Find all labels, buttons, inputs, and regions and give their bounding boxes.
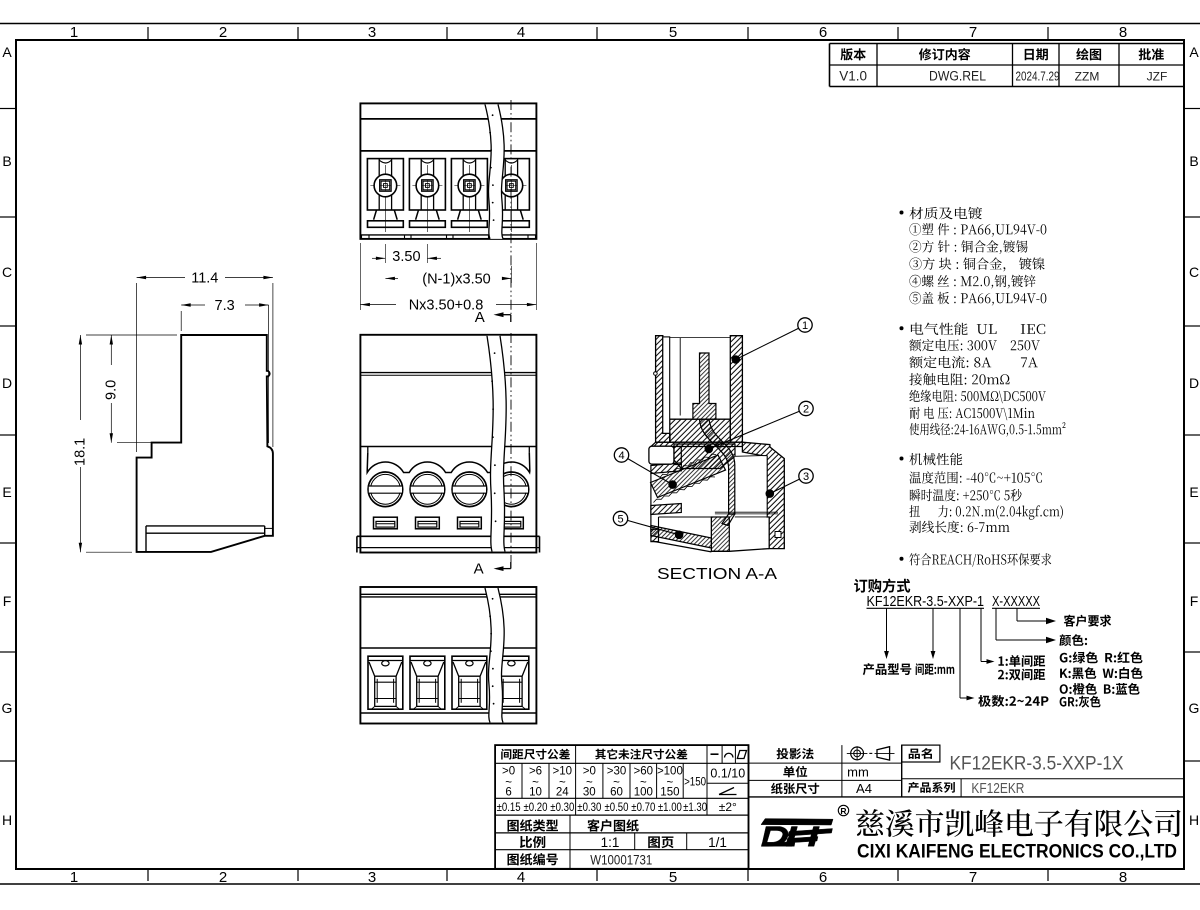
svg-text:1: 1 (802, 320, 808, 332)
svg-text:7: 7 (969, 24, 977, 41)
svg-text:W10001731: W10001731 (590, 851, 652, 867)
svg-text:3.50: 3.50 (392, 249, 420, 265)
svg-text:1: 1 (70, 24, 78, 41)
svg-text:D: D (1189, 375, 1199, 391)
svg-text:±0.70: ±0.70 (631, 802, 655, 814)
svg-text:KF12EKR-3.5-XXP-1: KF12EKR-3.5-XXP-1 (867, 594, 985, 610)
svg-text:5: 5 (669, 869, 677, 886)
svg-text:B: B (1189, 153, 1198, 169)
svg-text:B: B (2, 153, 11, 169)
svg-text:H: H (1189, 812, 1199, 828)
svg-text:E: E (2, 484, 11, 500)
svg-text:C: C (2, 264, 12, 280)
svg-text:4: 4 (517, 24, 525, 41)
svg-text:1: 1 (70, 869, 78, 886)
svg-text:H: H (2, 812, 12, 828)
svg-text:2: 2 (219, 869, 227, 886)
svg-text:±1.00: ±1.00 (658, 802, 682, 814)
svg-text:A: A (475, 309, 485, 326)
svg-text:V1.0: V1.0 (839, 69, 867, 84)
svg-text:G: G (2, 700, 13, 716)
svg-text:100: 100 (634, 787, 653, 799)
svg-text:F: F (3, 593, 12, 609)
svg-text:A: A (2, 44, 12, 60)
svg-text:>100: >100 (657, 766, 683, 778)
svg-text:8: 8 (1119, 24, 1127, 41)
svg-text:Nx3.50+0.8: Nx3.50+0.8 (409, 297, 484, 313)
svg-text:6: 6 (819, 869, 827, 886)
svg-text:±2°: ±2° (719, 800, 737, 814)
svg-text:KF12EKR: KF12EKR (971, 780, 1024, 797)
svg-text:0.1/10: 0.1/10 (710, 767, 745, 781)
svg-text:A: A (1189, 44, 1199, 60)
svg-text:7: 7 (969, 869, 977, 886)
svg-text:±0.20: ±0.20 (524, 802, 548, 814)
svg-text:5: 5 (617, 513, 623, 525)
svg-text:>150: >150 (684, 775, 706, 789)
svg-text:C: C (1189, 264, 1199, 280)
svg-text:11.4: 11.4 (191, 270, 218, 286)
svg-text:F: F (1190, 593, 1199, 609)
svg-text:4: 4 (618, 450, 624, 462)
svg-text:mm: mm (847, 764, 869, 779)
svg-text:A4: A4 (856, 781, 872, 796)
svg-text:KF12EKR-3.5-XXP-1X: KF12EKR-3.5-XXP-1X (950, 753, 1124, 775)
svg-text:CIXI KAIFENG ELECTRONICS CO.,L: CIXI KAIFENG ELECTRONICS CO.,LTD (857, 842, 1177, 863)
svg-text:>10: >10 (553, 766, 573, 778)
svg-text:>0: >0 (583, 766, 596, 778)
svg-text:6: 6 (819, 24, 827, 41)
svg-text:1/1: 1/1 (708, 835, 727, 850)
svg-text:30: 30 (583, 787, 596, 799)
svg-text:JZF: JZF (1147, 69, 1168, 83)
svg-text:SECTION A-A: SECTION A-A (657, 566, 777, 583)
svg-text:>6: >6 (529, 766, 542, 778)
svg-text:8: 8 (1119, 869, 1127, 886)
svg-text:9.0: 9.0 (104, 380, 120, 400)
svg-text:>30: >30 (607, 766, 627, 778)
svg-text:>0: >0 (502, 766, 515, 778)
svg-text:ZZM: ZZM (1075, 69, 1100, 83)
svg-text:10: 10 (529, 787, 542, 799)
svg-text:3: 3 (368, 24, 376, 41)
svg-text:7.3: 7.3 (215, 298, 235, 314)
svg-text:2024.7.29: 2024.7.29 (1016, 70, 1060, 84)
svg-text:DWG.REL: DWG.REL (929, 69, 986, 84)
svg-text:±1.30: ±1.30 (683, 802, 707, 814)
svg-text:R: R (840, 806, 846, 816)
svg-text:2: 2 (219, 24, 227, 41)
svg-text:±0.30: ±0.30 (577, 802, 601, 814)
svg-text:4: 4 (517, 869, 525, 886)
svg-text:3: 3 (368, 869, 376, 886)
svg-text:X-XXXXX: X-XXXXX (992, 594, 1040, 610)
svg-text:18.1: 18.1 (73, 438, 89, 466)
svg-text:D: D (2, 375, 12, 391)
svg-text:60: 60 (610, 787, 623, 799)
svg-text:2: 2 (803, 403, 809, 415)
svg-text:24: 24 (556, 787, 569, 799)
svg-text:5: 5 (669, 24, 677, 41)
svg-text:±0.30: ±0.30 (550, 802, 574, 814)
svg-text:>60: >60 (634, 766, 654, 778)
svg-text:3: 3 (803, 471, 809, 483)
svg-text:G: G (1189, 700, 1200, 716)
svg-text:±0.15: ±0.15 (497, 802, 521, 814)
svg-text:E: E (1189, 484, 1198, 500)
svg-text:1:1: 1:1 (601, 835, 620, 850)
svg-text:A: A (474, 561, 484, 578)
svg-text:6: 6 (505, 787, 511, 799)
svg-text:150: 150 (660, 787, 679, 799)
svg-text:(N-1)x3.50: (N-1)x3.50 (422, 271, 491, 287)
svg-text:±0.50: ±0.50 (605, 802, 629, 814)
